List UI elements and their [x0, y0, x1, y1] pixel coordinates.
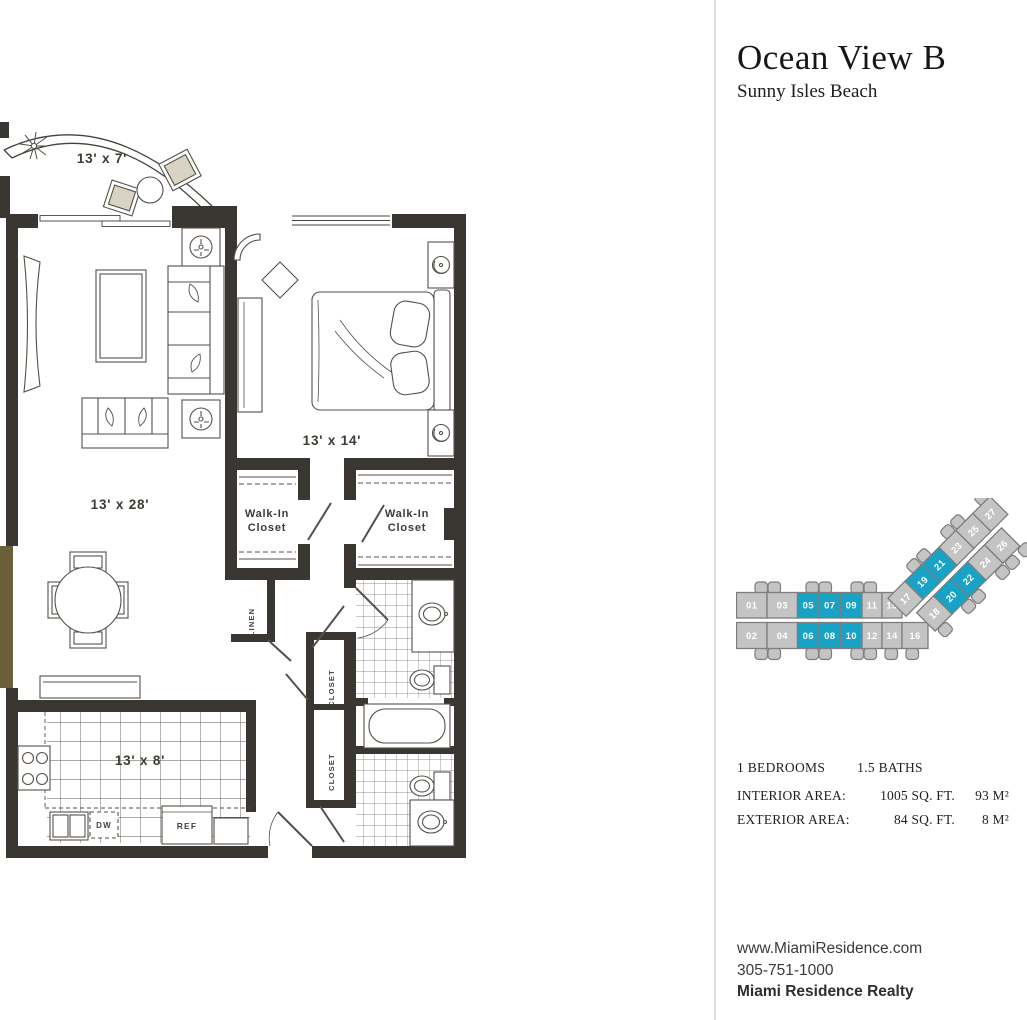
exterior-area-label: EXTERIOR AREA: — [737, 812, 875, 828]
keyplan-unit-06-label: 06 — [803, 631, 814, 642]
keyplan-balcony-tab — [819, 582, 832, 594]
exterior-area-row: EXTERIOR AREA: 84 SQ. FT. 8 M² — [737, 812, 1009, 828]
plant-icon — [20, 132, 48, 159]
closet-door-leaf — [308, 503, 331, 540]
keyplan-balcony-tab — [768, 582, 781, 594]
keyplan-unit-03-label: 03 — [777, 601, 788, 612]
sofa — [168, 266, 224, 394]
coffee-table — [96, 270, 146, 362]
balcony-sliding-door — [38, 214, 172, 228]
living-label: 13' x 28' — [91, 497, 150, 512]
keyplan-balcony-tab — [851, 648, 864, 660]
nightstand-lamp — [428, 410, 454, 456]
kitchen-label: 13' x 8' — [115, 753, 165, 768]
keyplan-unit-07-label: 07 — [824, 601, 835, 612]
refrigerator-label: REF — [177, 821, 198, 831]
corner-chair — [234, 234, 298, 298]
dresser — [238, 298, 262, 412]
keyplan-balcony-tab — [864, 582, 877, 594]
keyplan-unit-12-label: 12 — [866, 631, 877, 642]
powder-vanity — [410, 800, 454, 846]
keyplan-unit-08-label: 08 — [824, 631, 835, 642]
baths-value: 1.5 BATHS — [857, 760, 923, 776]
bathtub — [364, 704, 450, 748]
balcony-label: 13' x 7' — [77, 151, 127, 166]
panel-divider — [714, 0, 716, 1020]
interior-area-label: INTERIOR AREA: — [737, 788, 875, 804]
kitchen-sink — [50, 812, 88, 840]
plan-header: Ocean View B Sunny Isles Beach — [737, 38, 946, 103]
phone: 305-751-1000 — [737, 960, 922, 982]
walkin-closet-label: Walk-In — [245, 508, 289, 520]
dishwasher-label: DW — [96, 821, 112, 830]
exterior-area-m2: 8 M² — [955, 812, 1009, 828]
side-table-lamp — [182, 228, 220, 266]
page-subtitle: Sunny Isles Beach — [737, 81, 946, 103]
dining-table — [48, 552, 128, 648]
website: www.MiamiResidence.com — [737, 938, 922, 960]
closet-label: CLOSET — [327, 753, 336, 791]
keyplan-balcony-tab — [755, 648, 768, 660]
stove — [18, 746, 50, 790]
linen-label: LINEN — [247, 608, 256, 637]
keyplan-balcony-tab — [851, 582, 864, 594]
keyplan-unit-09-label: 09 — [846, 601, 857, 612]
building-keyplan: 0103050709111502040608101214161719212325… — [736, 498, 1027, 666]
company-name: Miami Residence Realty — [737, 981, 922, 1003]
page-title: Ocean View B — [737, 38, 946, 78]
keyplan-balcony-tab — [885, 648, 898, 660]
bedroom-label: 13' x 14' — [303, 433, 362, 448]
keyplan-balcony-tab — [864, 648, 877, 660]
console-table — [40, 676, 140, 698]
keyplan-balcony-tab — [906, 648, 919, 660]
walkin-closet-label: Walk-In — [385, 508, 429, 520]
keyplan-unit-10-label: 10 — [846, 631, 857, 642]
keyplan-balcony-tab — [768, 648, 781, 660]
balcony-table — [137, 177, 163, 203]
balcony-chair — [159, 149, 201, 191]
loveseat — [82, 398, 168, 448]
tv-console — [24, 256, 40, 392]
walkin-closet-label: Closet — [388, 522, 426, 534]
side-table-lamp — [182, 400, 220, 438]
keyplan-balcony-tab — [806, 648, 819, 660]
keyplan-unit-11-label: 11 — [867, 601, 878, 612]
balcony-chair — [103, 180, 140, 216]
realtor-footer: www.MiamiResidence.com 305-751-1000 Miam… — [737, 938, 922, 1003]
nightstand-lamp — [428, 242, 454, 288]
unit-stats: 1 BEDROOMS 1.5 BATHS INTERIOR AREA: 1005… — [737, 760, 1009, 828]
keyplan-balcony-tab — [755, 582, 768, 594]
bedroom-window — [290, 212, 392, 228]
keyplan-balcony-tab — [806, 582, 819, 594]
closet-label: CLOSET — [327, 669, 336, 707]
interior-area-m2: 93 M² — [955, 788, 1009, 804]
floorplan: 13' x 7' 13' x 28' 13' x 14' 13' x 8' Wa… — [0, 0, 715, 1020]
keyplan-unit-16-label: 16 — [909, 631, 920, 642]
closet-door-leaf — [362, 505, 384, 542]
flyer-page: 13' x 7' 13' x 28' 13' x 14' 13' x 8' Wa… — [0, 0, 1027, 1020]
interior-area-row: INTERIOR AREA: 1005 SQ. FT. 93 M² — [737, 788, 1009, 804]
interior-area-sqft: 1005 SQ. FT. — [875, 788, 955, 804]
exterior-area-sqft: 84 SQ. FT. — [875, 812, 955, 828]
bed — [312, 290, 450, 412]
keyplan-balcony-tab — [819, 648, 832, 660]
kitchen-counter — [214, 818, 248, 844]
keyplan-unit-05-label: 05 — [803, 601, 815, 612]
keyplan-unit-01-label: 01 — [746, 601, 758, 612]
beds-baths-row: 1 BEDROOMS 1.5 BATHS — [737, 760, 1009, 776]
keyplan-unit-14-label: 14 — [886, 631, 898, 642]
keyplan-unit-02-label: 02 — [746, 631, 757, 642]
walkin-closet-label: Closet — [248, 522, 286, 534]
bedrooms-value: 1 BEDROOMS — [737, 760, 825, 776]
keyplan-unit-04-label: 04 — [777, 631, 789, 642]
bathroom-vanity — [412, 580, 454, 652]
